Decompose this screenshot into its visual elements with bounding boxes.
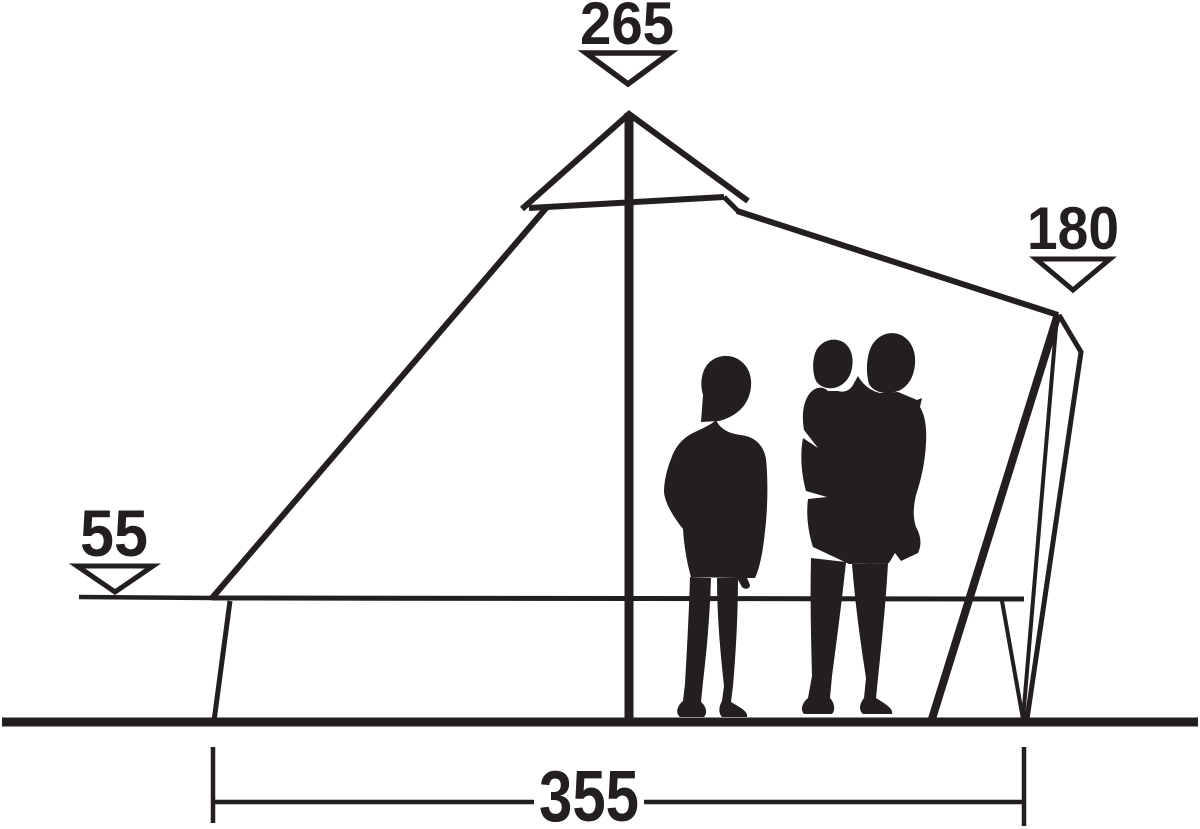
- entrance-strut: [1002, 601, 1023, 719]
- floor-width-label: 355: [539, 757, 639, 829]
- diagram-canvas: 265 180 55 355: [0, 0, 1200, 829]
- peak-height-label: 265: [580, 0, 674, 57]
- child-head: [813, 340, 852, 389]
- tent-left-slope: [212, 207, 547, 598]
- family-silhouette: [664, 333, 926, 717]
- adult-head: [867, 333, 915, 393]
- side-wall-height-label: 55: [80, 496, 148, 570]
- skirt-reference-line: [79, 597, 213, 598]
- woman-silhouette: [664, 356, 767, 717]
- adult-front-leg: [802, 558, 846, 714]
- tent-base-line: [212, 598, 1024, 599]
- adult-with-child-silhouette: [801, 333, 926, 714]
- tent-cap-kink: [724, 197, 739, 212]
- down-triangle-icon-entrance: [1036, 259, 1110, 290]
- tent-left-leg: [214, 601, 230, 721]
- adult-child-torso: [801, 376, 926, 564]
- woman-head: [701, 356, 751, 422]
- woman-torso: [664, 420, 767, 589]
- down-triangle-icon-peak: [586, 53, 670, 84]
- adult-back-leg: [852, 563, 892, 714]
- tent-dimension-diagram: 265 180 55 355: [0, 0, 1200, 829]
- entrance-height-label: 180: [1027, 195, 1119, 262]
- tent-right-slope: [737, 211, 1058, 315]
